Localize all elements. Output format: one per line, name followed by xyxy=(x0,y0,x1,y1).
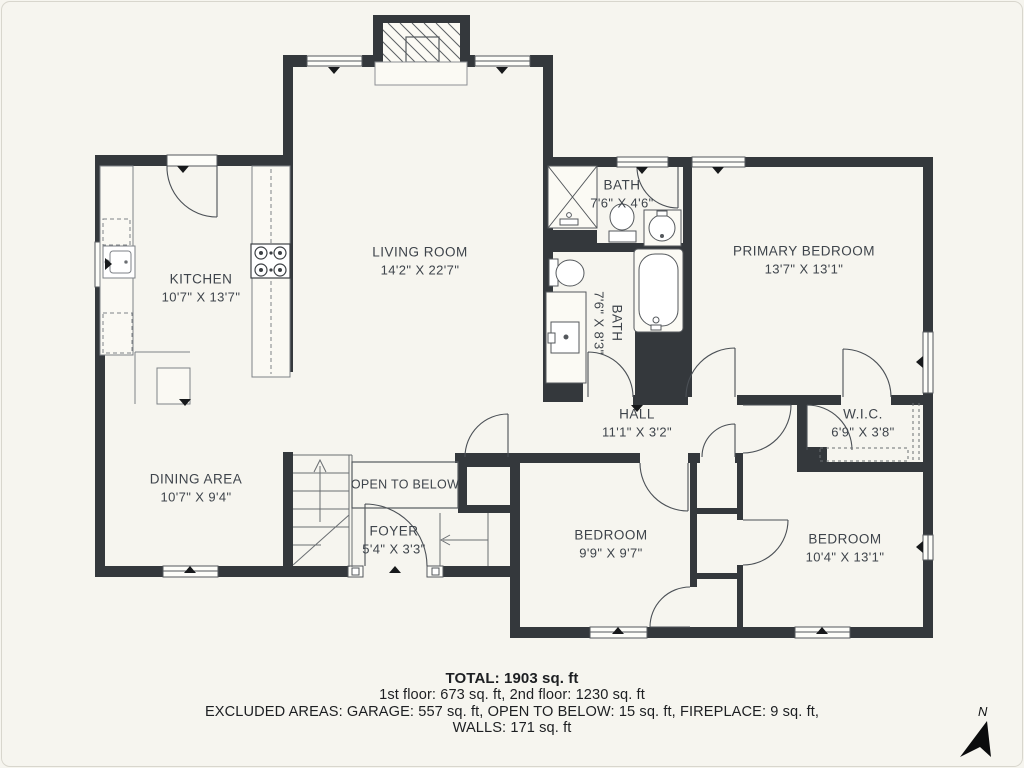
door-primary-wic xyxy=(843,349,891,397)
sidelite xyxy=(427,566,443,577)
summary-excluded: EXCLUDED AREAS: GARAGE: 557 sq. ft, OPEN… xyxy=(0,704,1024,720)
area-summary: TOTAL: 1903 sq. ft 1st floor: 673 sq. ft… xyxy=(0,671,1024,737)
room-label-bedroom-left: BEDROOM 9'9" X 9'7" xyxy=(574,528,647,561)
window xyxy=(307,56,362,66)
window xyxy=(923,535,933,560)
door-landing xyxy=(465,414,508,457)
kitchen-island-box xyxy=(157,368,190,404)
door-bedroom-right xyxy=(743,405,791,453)
toilet xyxy=(549,259,584,286)
floorplan-drawing xyxy=(0,0,1024,768)
room-label-dining-area: DINING AREA 10'7" X 9'4" xyxy=(150,472,243,505)
room-label-living-room: LIVING ROOM 14'2" X 22'7" xyxy=(372,245,468,278)
summary-walls: WALLS: 171 sq. ft xyxy=(0,720,1024,736)
floorplan-page: KITCHEN 10'7" X 13'7" LIVING ROOM 14'2" … xyxy=(0,0,1024,768)
window xyxy=(617,157,668,167)
vanity-sink xyxy=(546,292,586,383)
summary-floors: 1st floor: 673 sq. ft, 2nd floor: 1230 s… xyxy=(0,687,1024,703)
bath-sink xyxy=(644,210,681,246)
hearth xyxy=(375,62,467,85)
room-label-foyer: FOYER 5'4" X 3'3" xyxy=(362,524,425,557)
stove xyxy=(251,244,290,278)
room-label-wic: W.I.C. 6'9" X 3'8" xyxy=(831,407,894,440)
door-closet-bottom xyxy=(650,587,690,627)
north-compass: N xyxy=(942,698,1002,762)
sidelite xyxy=(348,566,363,577)
room-label-primary-bedroom: PRIMARY BEDROOM 13'7" X 13'1" xyxy=(733,244,875,277)
stair-break-line xyxy=(293,515,349,565)
summary-total: TOTAL: 1903 sq. ft xyxy=(0,671,1024,687)
foyer-closet xyxy=(440,513,488,566)
doorway-opening xyxy=(167,155,217,166)
room-label-kitchen: KITCHEN 10'7" X 13'7" xyxy=(162,272,241,305)
door-hall-closet xyxy=(702,424,735,457)
door-bedroom-left xyxy=(640,463,688,511)
door-garage-entry xyxy=(167,165,217,217)
door-closet-mid xyxy=(743,520,788,565)
room-label-open-to-below: OPEN TO BELOW xyxy=(351,478,459,493)
staircase xyxy=(293,455,352,567)
window xyxy=(923,332,933,393)
room-label-bath-upper: BATH 7'6" X 4'6" xyxy=(590,178,653,211)
room-label-bedroom-right: BEDROOM 10'4" X 13'1" xyxy=(806,532,885,565)
room-label-hall: HALL 11'1" X 3'2" xyxy=(602,407,672,440)
window xyxy=(692,157,745,167)
door-primary-hall xyxy=(686,348,735,397)
door-bath-lower xyxy=(588,352,633,397)
north-arrow-icon xyxy=(942,698,1002,762)
room-label-bath-lower: BATH 7'6" X 8'3" xyxy=(592,291,625,354)
window xyxy=(475,56,530,66)
bathtub xyxy=(634,249,683,332)
